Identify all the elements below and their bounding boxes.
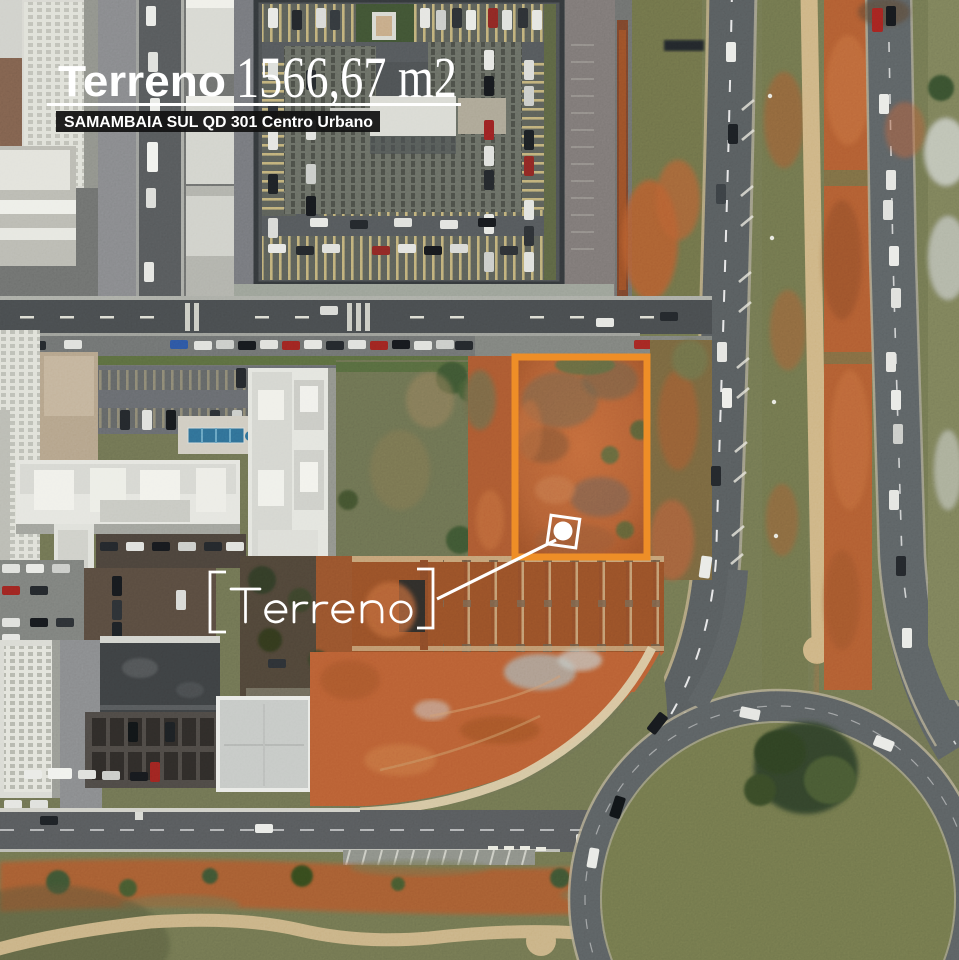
svg-text:1566,67 m2: 1566,67 m2 — [236, 45, 457, 110]
svg-text:SAMAMBAIA SUL QD 301 Centro Ur: SAMAMBAIA SUL QD 301 Centro Urbano — [64, 114, 373, 131]
svg-text:Terreno: Terreno — [58, 57, 226, 106]
